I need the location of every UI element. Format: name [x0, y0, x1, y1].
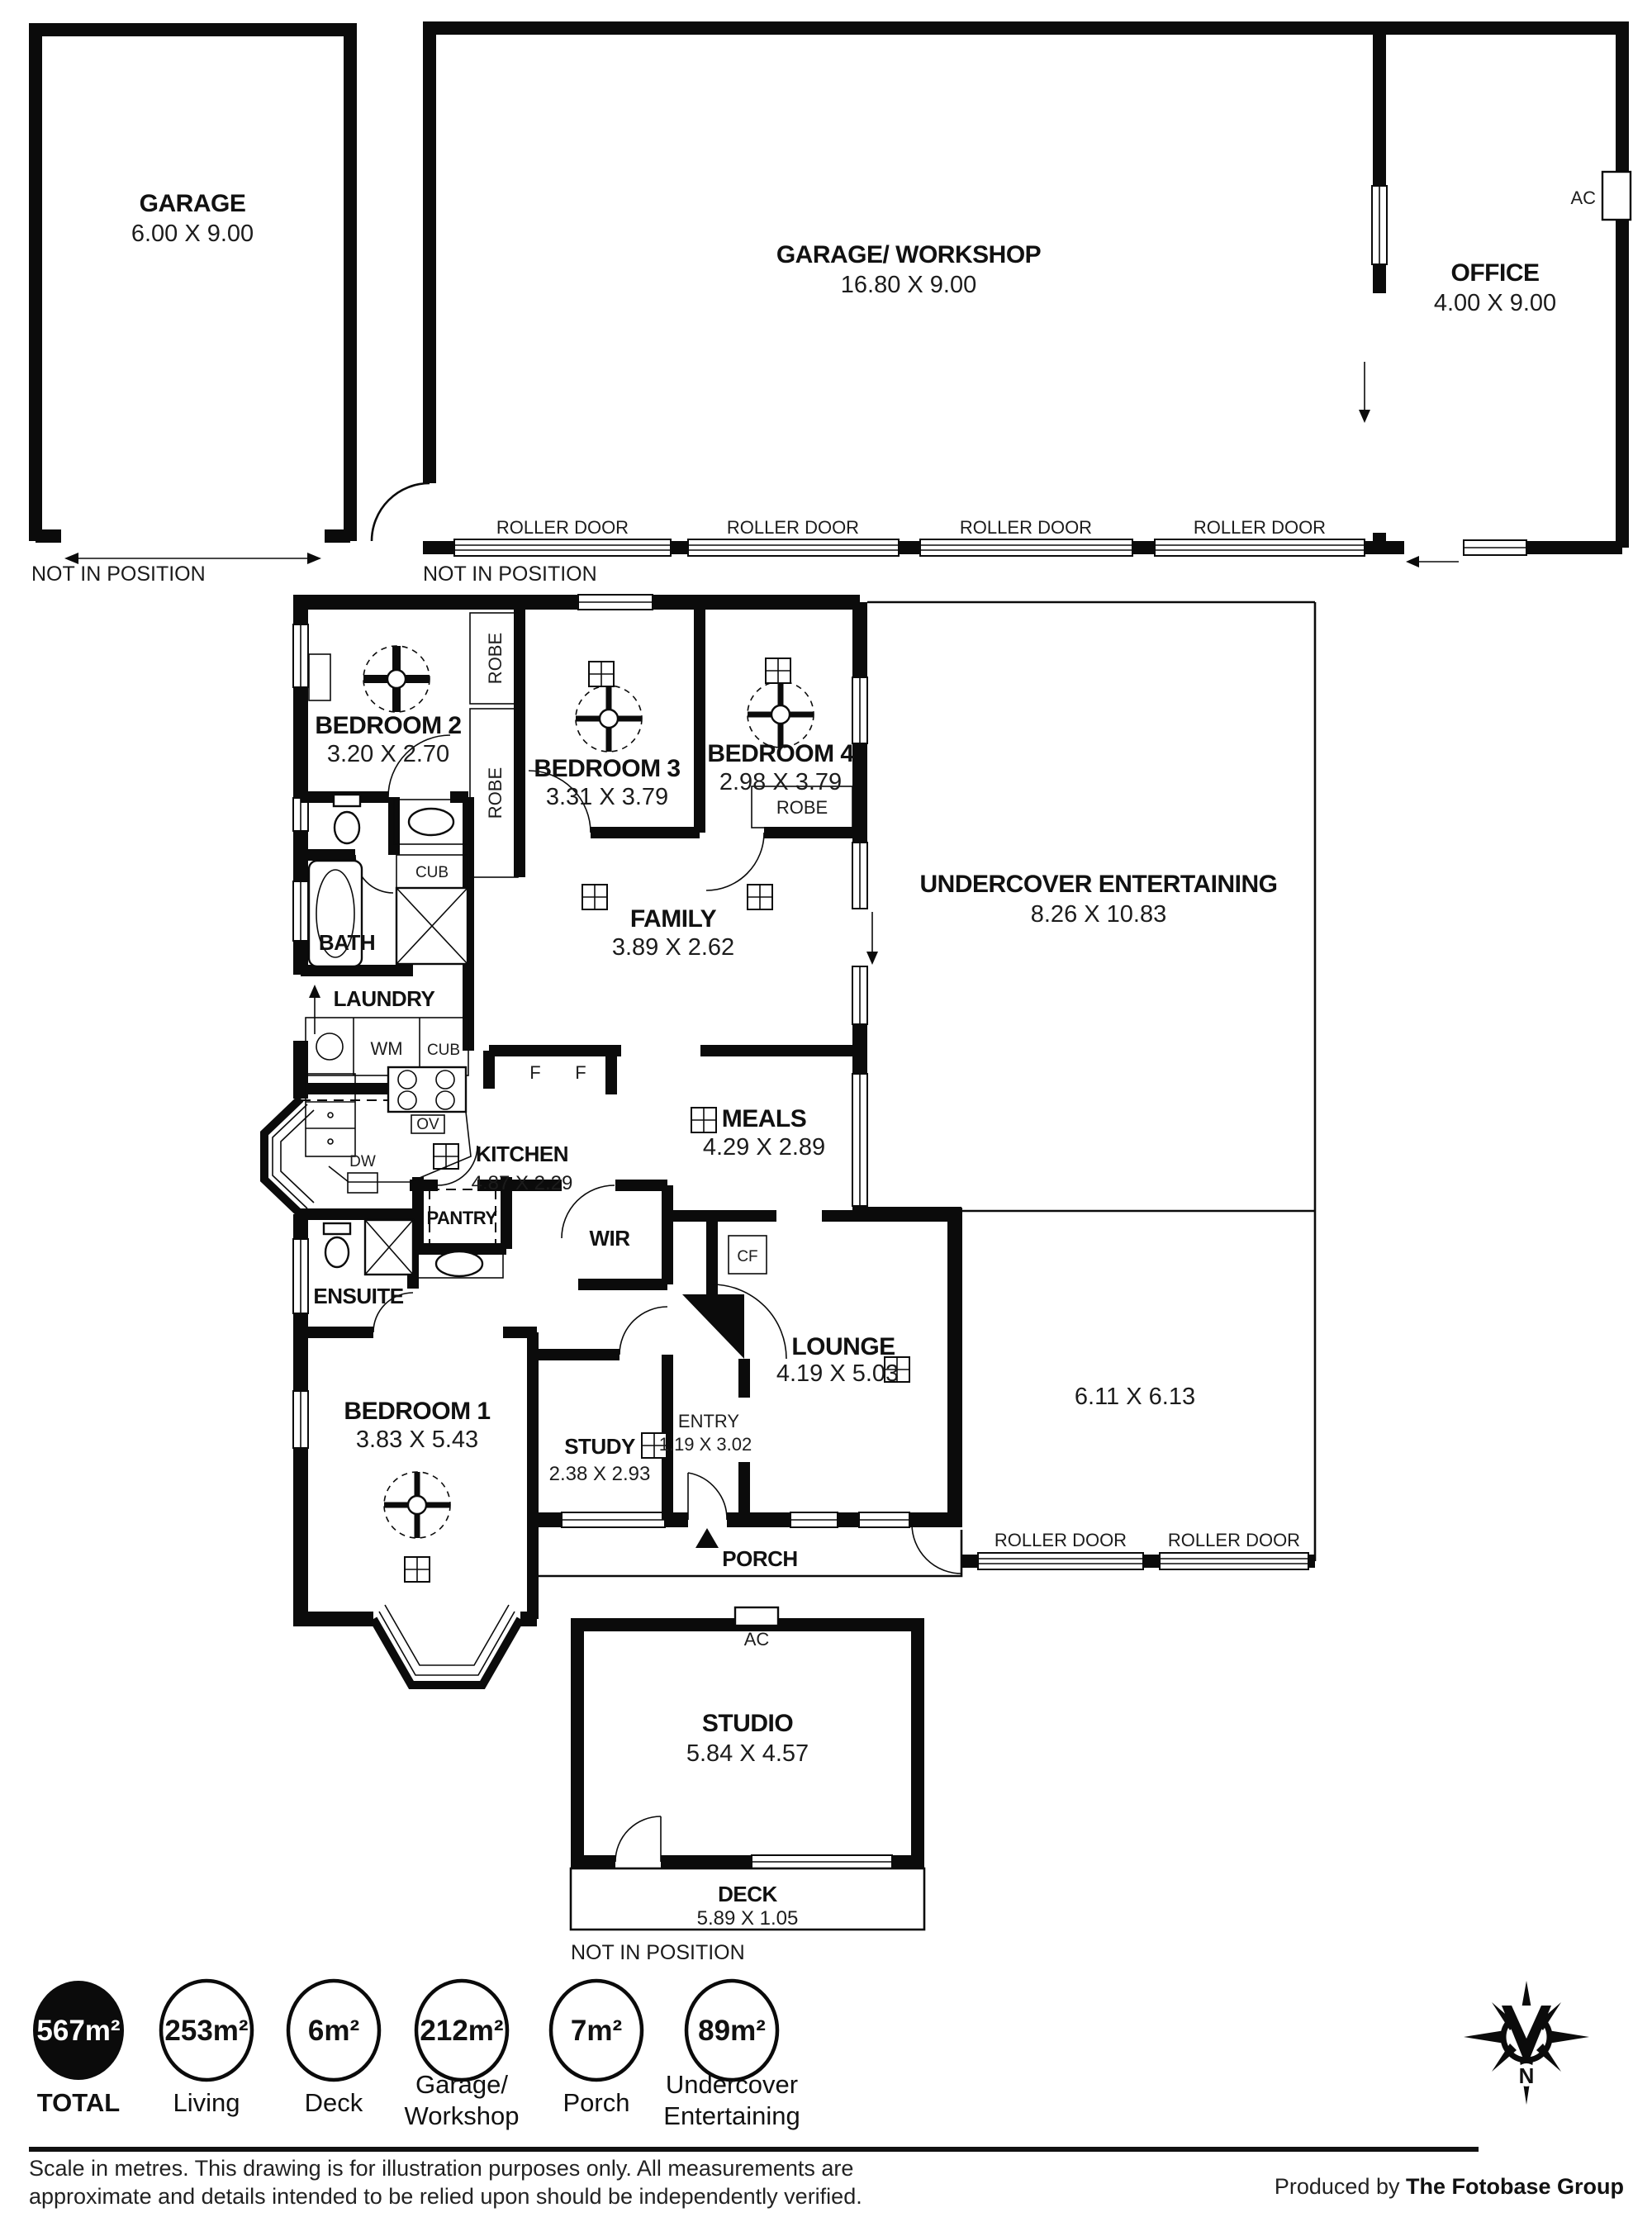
workshop-label: GARAGE/ WORKSHOP	[776, 241, 1041, 268]
rear-garage-dims: 6.11 X 6.13	[1075, 1384, 1195, 1410]
legend-undercover-value: 89m²	[698, 2015, 766, 2047]
legend-garage-value: 212m²	[420, 2015, 503, 2047]
robe-label-1: ROBE	[485, 633, 506, 684]
undercover-dims: 8.26 X 10.83	[1031, 901, 1166, 928]
bedroom3-label: BEDROOM 3	[534, 755, 680, 782]
legend-undercover-label2: Entertaining	[663, 2101, 800, 2130]
legend-porch-value: 7m²	[571, 2015, 622, 2047]
roller-door-label-5: ROLLER DOOR	[995, 1530, 1127, 1550]
robe-label-3: ROBE	[776, 797, 828, 818]
office-divider-window	[1372, 186, 1387, 264]
entry-dims: 1.19 X 3.02	[659, 1434, 752, 1455]
workshop-dims: 16.80 X 9.00	[841, 272, 976, 298]
studio-ac-label: AC	[744, 1629, 770, 1650]
bedroom1-bay-window	[373, 1605, 520, 1685]
arrow-right-icon	[307, 553, 321, 564]
family-dims: 3.89 X 2.62	[612, 934, 734, 961]
produced-by: Produced by The Fotobase Group	[1275, 2174, 1624, 2199]
studio-label: STUDIO	[702, 1710, 794, 1737]
cf-label: CF	[737, 1248, 757, 1265]
powder-vanity	[394, 800, 468, 844]
study-label: STUDY	[564, 1434, 635, 1459]
garage-outline	[29, 23, 357, 564]
office-ac-label: AC	[1570, 188, 1596, 208]
wm-label: WM	[370, 1038, 402, 1059]
undercover-label: UNDERCOVER ENTERTAINING	[920, 871, 1278, 898]
laundry-cub-label: CUB	[427, 1042, 460, 1059]
meals-dims: 4.29 X 2.89	[703, 1134, 825, 1161]
laundry-door-arrow	[309, 985, 320, 1034]
pantry-label: PANTRY	[427, 1208, 498, 1228]
office-ac-unit	[1602, 172, 1631, 220]
compass-north-icon: N	[1464, 1981, 1589, 2105]
legend-garage-label2: Workshop	[405, 2101, 520, 2130]
ensuite-shower	[365, 1220, 413, 1275]
workshop-note: NOT IN POSITION	[423, 563, 597, 586]
garage-dims: 6.00 X 9.00	[131, 221, 254, 247]
floorplan-page: GARAGE 6.00 X 9.00 NOT IN POSITION ROLLE…	[0, 0, 1652, 2217]
lounge-dims: 4.19 X 5.03	[776, 1360, 899, 1387]
legend-deck-value: 6m²	[308, 2015, 359, 2047]
entry-marker-icon	[695, 1528, 719, 1548]
office-label: OFFICE	[1451, 259, 1540, 287]
fridge-label-1: F	[529, 1062, 540, 1083]
bedroom2-label: BEDROOM 2	[315, 712, 461, 739]
bath-shower	[396, 888, 468, 964]
kitchen-label: KITCHEN	[476, 1142, 568, 1166]
undercover-outline	[867, 602, 1315, 1561]
ensuite-toilet	[324, 1223, 350, 1267]
studio-note: NOT IN POSITION	[571, 1941, 745, 1964]
garage-label: GARAGE	[140, 190, 246, 217]
bedroom1-dims: 3.83 X 5.43	[356, 1427, 478, 1453]
family-slide-arrow	[866, 912, 878, 965]
porch-label: PORCH	[722, 1546, 797, 1571]
family-label: FAMILY	[630, 905, 717, 933]
bath-cub-label: CUB	[415, 864, 449, 881]
roller-door-label-1: ROLLER DOOR	[496, 517, 629, 538]
legend-porch-label: Porch	[563, 2088, 630, 2117]
disclaimer-line2: approximate and details intended to be r…	[29, 2184, 862, 2209]
dishwasher-label: DW	[349, 1153, 376, 1170]
compass-n-label: N	[1519, 2063, 1535, 2088]
legend-living-label: Living	[173, 2088, 240, 2117]
roller-door-label-4: ROLLER DOOR	[1194, 517, 1326, 538]
legend: 567m² 253m² 6m² 212m² 7m² 89m² TOTAL Liv…	[33, 1981, 800, 2130]
garage-note: NOT IN POSITION	[31, 563, 206, 586]
roller-door-label-3: ROLLER DOOR	[960, 517, 1092, 538]
workshop-door-arc	[372, 483, 430, 541]
legend-living-value: 253m²	[164, 2015, 248, 2047]
ceiling-fan-bed1	[384, 1472, 450, 1538]
office-divider-slide-arrow	[1359, 362, 1370, 423]
ceiling-fan-bed2	[309, 646, 430, 712]
roller-door-label-2: ROLLER DOOR	[727, 517, 859, 538]
bedroom1-label: BEDROOM 1	[344, 1398, 490, 1425]
legend-deck-label: Deck	[305, 2088, 363, 2117]
producer-name: The Fotobase Group	[1406, 2174, 1624, 2199]
study-dims: 2.38 X 2.93	[549, 1463, 651, 1485]
floorplan-drawing: GARAGE 6.00 X 9.00 NOT IN POSITION ROLLE…	[0, 0, 1652, 2217]
ceiling-fan-bed4	[748, 681, 814, 748]
legend-undercover-label: Undercover	[666, 2070, 798, 2099]
ensuite-label: ENSUITE	[313, 1284, 403, 1308]
lounge-label: LOUNGE	[791, 1333, 895, 1360]
bedroom2-dims: 3.20 X 2.70	[327, 741, 449, 767]
bath-label: BATH	[319, 930, 375, 955]
wc-toilet	[334, 795, 360, 843]
kitchen-dims: 4.87 X 2.29	[472, 1172, 573, 1194]
produced-by-prefix: Produced by	[1275, 2174, 1406, 2199]
rear-garage-roller-doors	[961, 1553, 1315, 1569]
bedroom4-dims: 2.98 X 3.79	[719, 769, 842, 795]
office-bottom-window	[1464, 540, 1526, 555]
roller-door-label-6: ROLLER DOOR	[1168, 1530, 1300, 1550]
deck-label: DECK	[718, 1882, 777, 1906]
oven-label: OV	[416, 1116, 439, 1133]
bedroom3-dims: 3.31 X 3.79	[546, 784, 668, 810]
deck-dims: 5.89 X 1.05	[697, 1907, 799, 1930]
office-slide-arrow	[1406, 556, 1459, 567]
entry-label: ENTRY	[678, 1411, 739, 1431]
workshop-office-walls	[372, 21, 1629, 548]
bedroom4-label: BEDROOM 4	[707, 740, 854, 767]
ceiling-fan-bed3	[576, 686, 642, 752]
studio-dims: 5.84 X 4.57	[686, 1740, 809, 1767]
legend-total-value: 567m²	[36, 2015, 120, 2047]
entry-corner-wedge	[682, 1294, 744, 1359]
meals-label: MEALS	[722, 1105, 807, 1132]
disclaimer-line1: Scale in metres. This drawing is for ill…	[29, 2156, 853, 2181]
robe-label-2: ROBE	[485, 767, 506, 819]
wir-label: WIR	[589, 1226, 630, 1251]
legend-garage-label: Garage/	[415, 2070, 508, 2099]
laundry-label: LAUNDRY	[334, 986, 435, 1011]
legend-total-label: TOTAL	[37, 2088, 120, 2117]
office-dims: 4.00 X 9.00	[1434, 290, 1556, 316]
fridge-label-2: F	[575, 1062, 586, 1083]
